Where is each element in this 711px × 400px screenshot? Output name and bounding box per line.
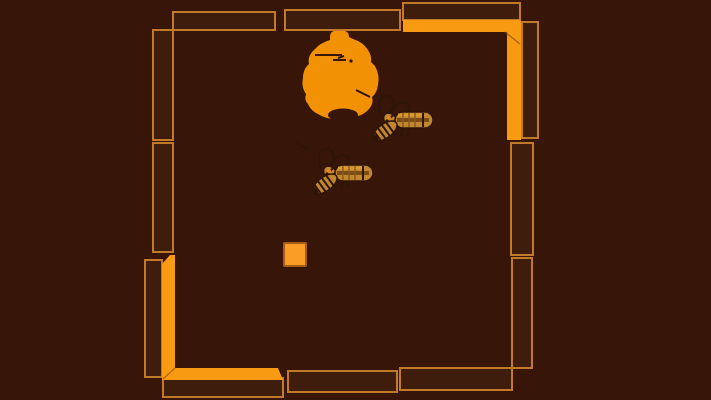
left-upper-block <box>153 30 173 140</box>
right-lower-block <box>512 258 532 368</box>
wasp-sprite-2 <box>296 143 373 198</box>
player-block <box>284 243 306 266</box>
bottom-left-bracket <box>162 255 283 380</box>
top-left-block <box>173 12 275 30</box>
right-middle-block <box>511 143 533 255</box>
game-screen <box>0 0 711 400</box>
bottom-left-block <box>163 378 283 397</box>
top-right-block <box>403 3 520 20</box>
right-upper-side-block <box>522 22 538 138</box>
left-middle-block <box>153 143 173 252</box>
bottom-right-block <box>400 368 512 390</box>
hive-entrance-hole <box>328 109 358 122</box>
beehive-sprite <box>302 31 378 122</box>
left-lower-side-block <box>145 260 162 377</box>
game-canvas[interactable] <box>0 0 711 400</box>
bottom-middle-block <box>288 371 397 392</box>
top-middle-block <box>285 10 400 30</box>
